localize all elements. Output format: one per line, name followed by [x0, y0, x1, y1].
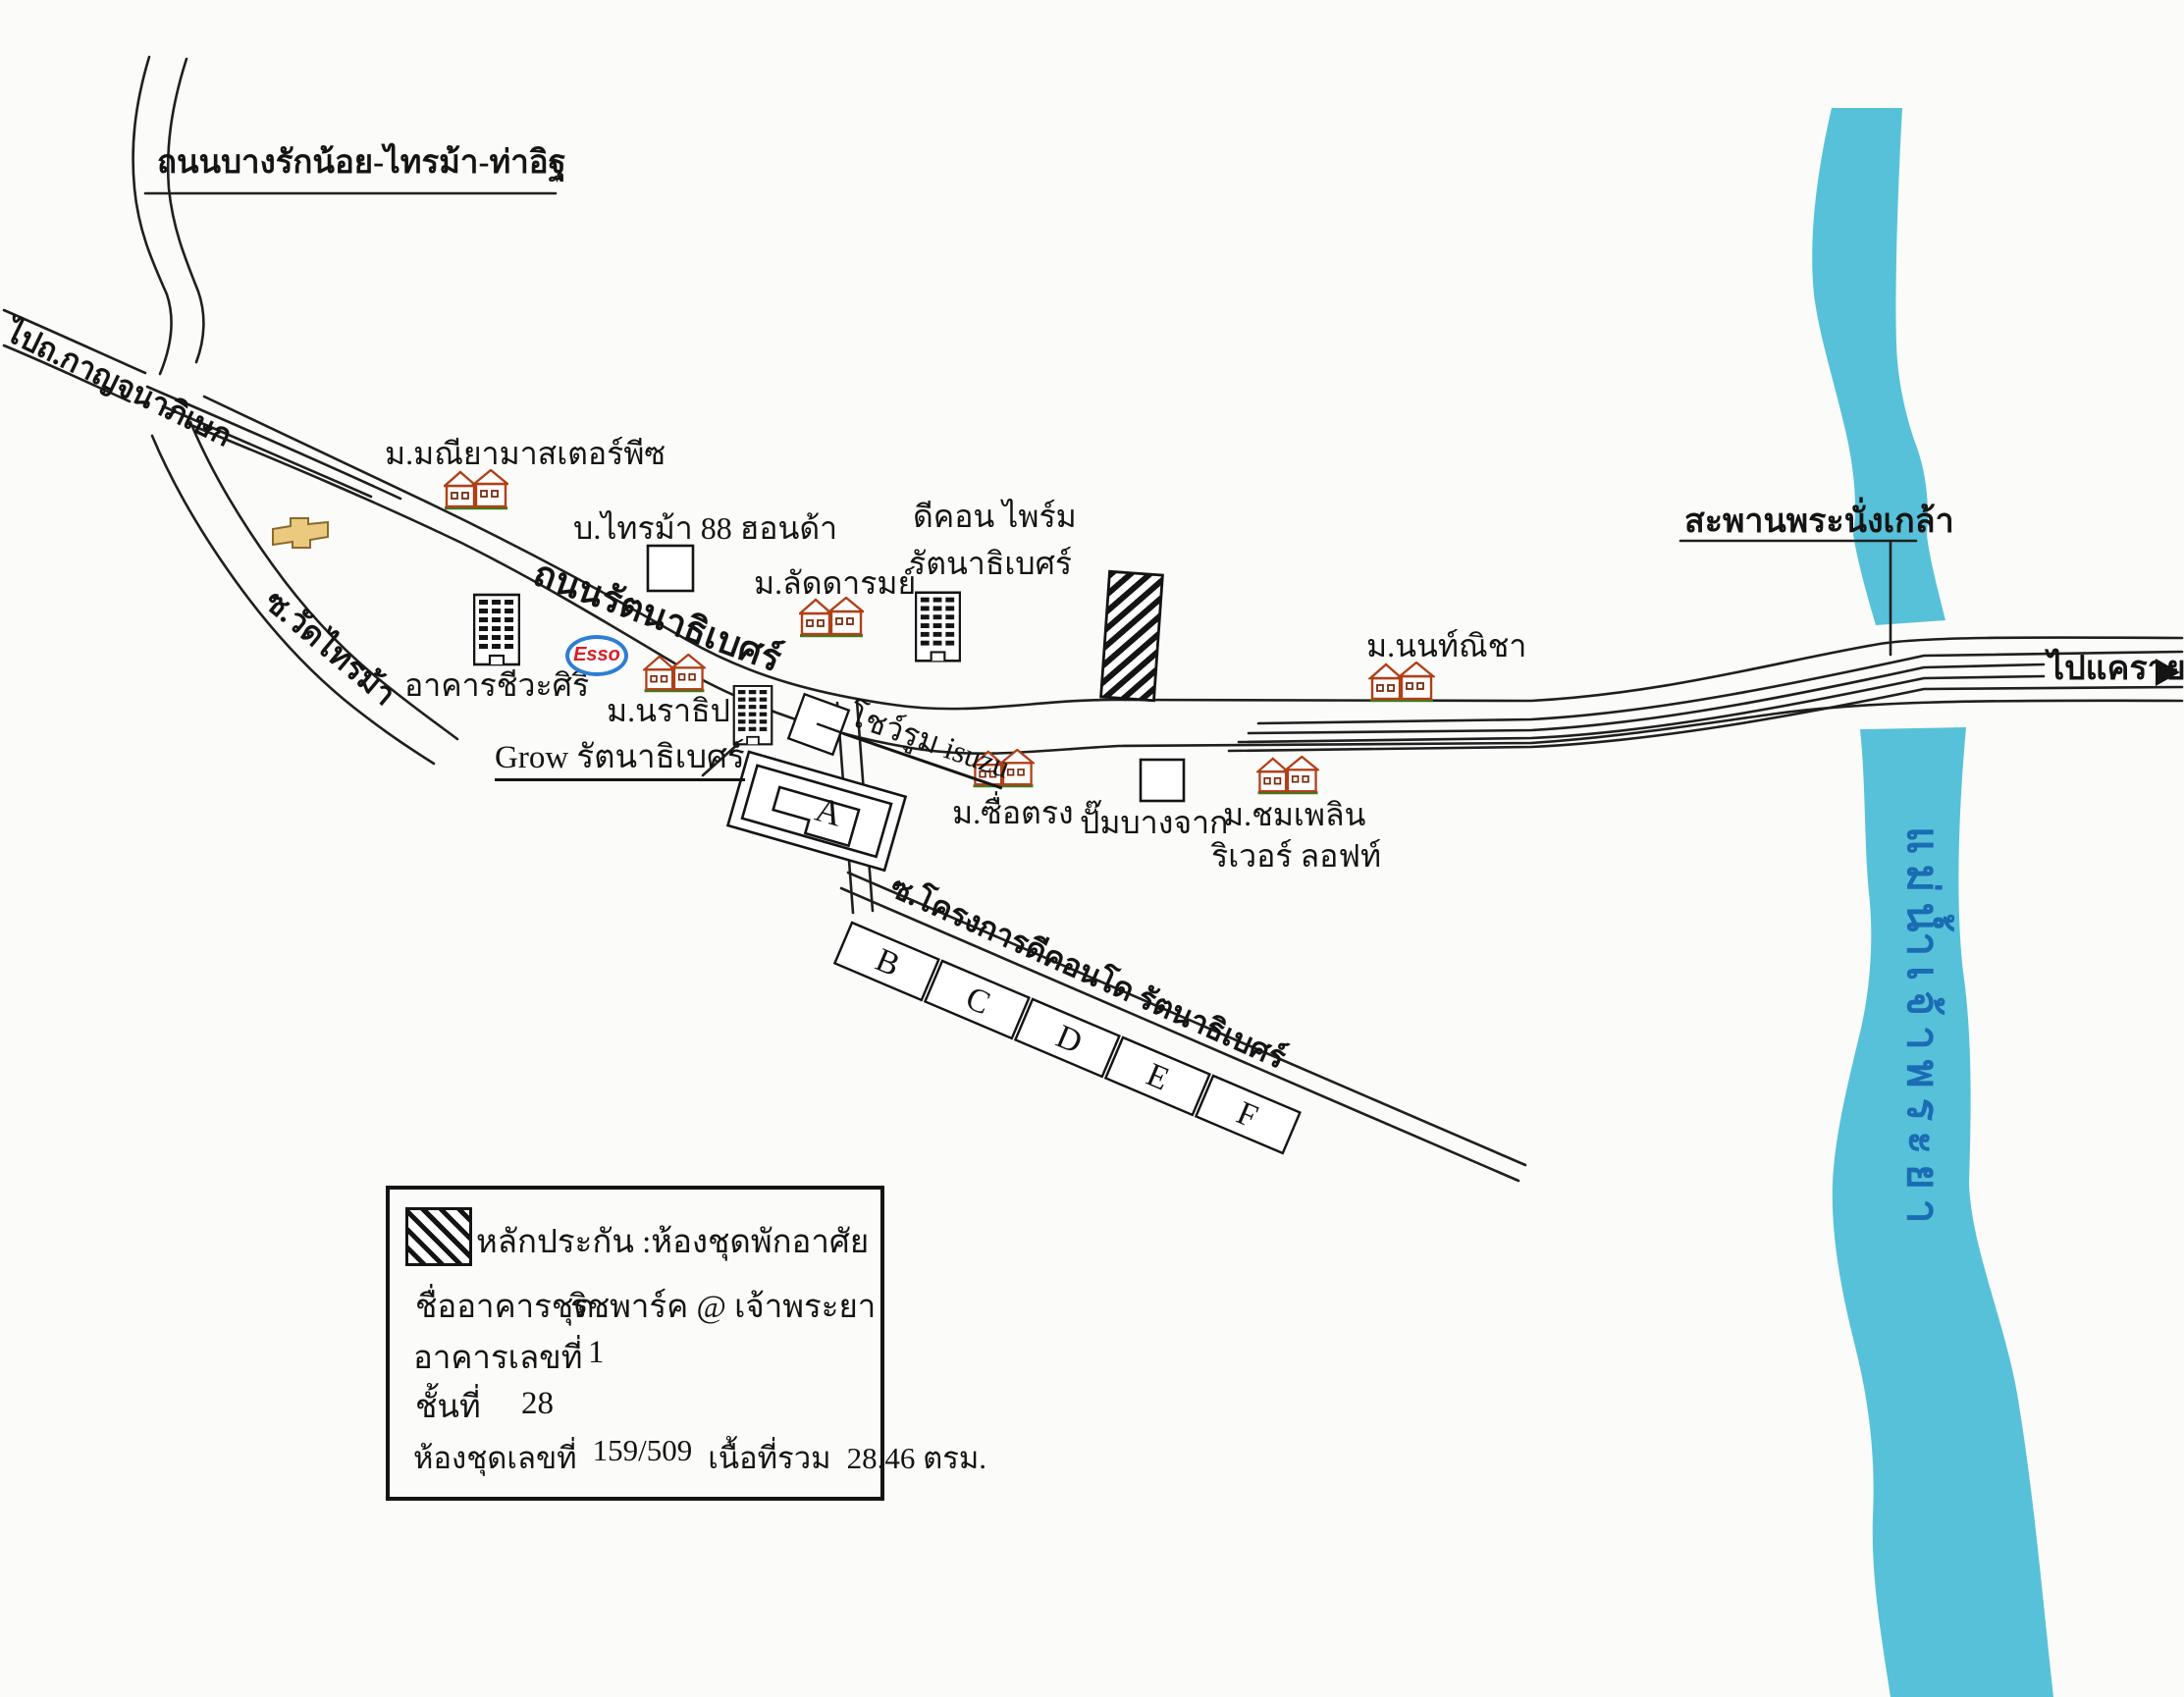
place-label-dcon-prime-1: ดีคอน ไพร์ม [913, 499, 1077, 535]
place-label-bangchak: ปั๊มบางจาก [1080, 805, 1228, 841]
place-label-nonnicha: ม.นนท์ณิชา [1366, 628, 1526, 664]
road-label-bangraknoi: ถนนบางรักน้อย-ไทรม้า-ท่าอิฐ [157, 145, 566, 183]
legend-collateral: หลักประกัน :ห้องชุดพักอาศัย [476, 1215, 869, 1267]
river-label: แม่น้ำเจ้าพระยา [1889, 826, 1957, 1233]
subject-condo-hatched-tower [1101, 571, 1163, 700]
place-label-suetrong: ม.ซื่อตรง [952, 795, 1074, 831]
legend-condo-name-value: ริชพาร์ค @ เจ้าพระยา [570, 1280, 876, 1332]
bangraknoi-road-right [168, 59, 203, 362]
place-label-laddarom: ม.ลัดดารมย์ [754, 565, 916, 602]
place-label-cheewasiri: อาคารชีวะศิริ [404, 667, 589, 704]
place-label-saima88-honda: บ.ไทรม้า 88 ฮอนด้า [573, 510, 837, 547]
place-label-narathip: ม.นราธิป [607, 693, 730, 729]
block-d: D [1015, 999, 1119, 1077]
bridge-label: สะพานพระนั่งเกล้า [1684, 503, 1954, 541]
legend-unit-value: 159/509 [593, 1433, 693, 1482]
location-map: A B C D E F [0, 0, 2184, 1697]
road-label-to-khaerai: ไปแคราย [2048, 650, 2184, 688]
block-b: B [834, 923, 938, 1000]
nonnicha-house-icon [1370, 663, 1433, 702]
bangraknoi-road-left [133, 57, 172, 374]
legend-floor-value: 28 [521, 1386, 554, 1422]
map-canvas: A B C D E F [0, 0, 2184, 1697]
soi-dcondo-lower [841, 888, 1518, 1181]
bangchak-square-icon [1141, 760, 1184, 801]
chomphloen-house-icon [1258, 757, 1318, 794]
legend-box: หลักประกัน :ห้องชุดพักอาศัย ชื่ออาคารชุด… [386, 1186, 884, 1501]
legend-building-no-label: อาคารเลขที่ [413, 1331, 583, 1383]
legend-condo-name-label: ชื่ออาคารชุด [415, 1280, 595, 1332]
maneeya-house-icon [445, 470, 507, 509]
place-label-maneeya: ม.มณียามาสเตอร์พีซ [385, 436, 666, 472]
block-c: C [925, 961, 1029, 1038]
place-label-chomphloen-1: ม.ชมเพลิน [1223, 797, 1365, 833]
legend-unit-row: ห้องชุดเลขที่ 159/509 เนื้อที่รวม 28.46 … [413, 1433, 986, 1482]
chevrolet-logo-icon [273, 518, 328, 548]
legend-building-no-value: 1 [588, 1335, 605, 1371]
block-a-compound: A [728, 752, 906, 871]
narathip-house-icon [645, 655, 705, 692]
cheewasiri-building-icon [474, 595, 519, 664]
hatch-swatch-icon [405, 1207, 472, 1266]
place-label-dcon-prime-2: รัตนาธิเบศร์ [909, 546, 1072, 582]
grow-building-icon [734, 686, 772, 744]
honda-square-icon [648, 546, 693, 591]
legend-floor-label: ชั้นที่ [415, 1380, 481, 1432]
block-f: F [1196, 1076, 1300, 1153]
dcon-prime-building-icon [916, 593, 960, 662]
legend-area-value: 28.46 ตรม. [847, 1433, 986, 1482]
place-label-grow: Grow รัตนาธิเบศร์ [495, 740, 745, 781]
laddarom-house-icon [800, 598, 863, 637]
esso-logo-icon: Esso [565, 635, 628, 676]
legend-area-label: เนื้อที่รวม [708, 1433, 830, 1482]
place-label-chomphloen-2: ริเวอร์ ลอฟท์ [1211, 838, 1381, 875]
block-e: E [1105, 1037, 1209, 1115]
legend-unit-label: ห้องชุดเลขที่ [413, 1433, 577, 1482]
